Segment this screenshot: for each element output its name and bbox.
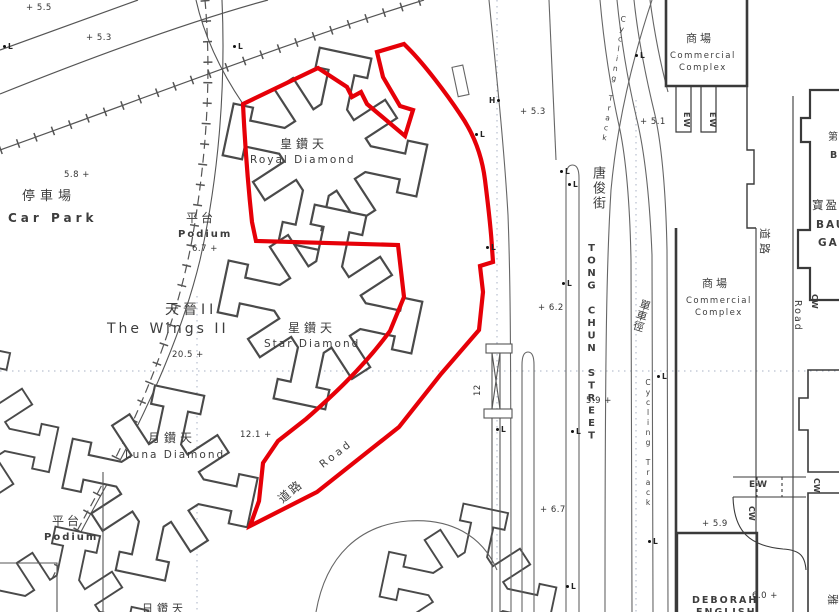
label-cw-1: CW xyxy=(810,294,818,309)
marker-l-5: L xyxy=(560,167,570,176)
label-commercial-top-line1: Commercial xyxy=(670,52,736,61)
spot-height-6-7-podium: 6.7 + xyxy=(192,244,218,254)
label-cycling-track-mid-en: Cycling Track xyxy=(644,378,652,508)
marker-l-4: L xyxy=(486,243,496,252)
marker-l-13: L xyxy=(566,582,576,591)
marker-l-1: L xyxy=(3,42,13,51)
label-road-right-en: Road xyxy=(793,300,803,332)
spot-height-12-1: 12.1 + xyxy=(240,430,272,440)
label-block-partial-zh: 第 xyxy=(828,133,839,143)
label-commercial-mid-line1: Commercial xyxy=(686,297,752,306)
marker-dot xyxy=(568,183,571,186)
label-royal-diamond-zh: 皇鑽天 xyxy=(280,138,328,150)
label-podium-upper-en: Podium xyxy=(178,230,232,240)
survey-plan-map: 停車場 Car Park 天晉II The Wings II 皇鑽天 Royal… xyxy=(0,0,839,612)
label-car-park-zh: 停車場 xyxy=(22,190,76,203)
spot-height-6-0: 6.0 + xyxy=(752,591,778,601)
marker-l-6: L xyxy=(568,180,578,189)
spot-height-5-3-tl: + 5.3 xyxy=(86,33,112,43)
marker-l-12: L xyxy=(648,537,658,546)
label-car-park-en: Car Park xyxy=(8,212,97,224)
marker-dot xyxy=(635,54,638,57)
marker-l-11: L xyxy=(657,372,667,381)
label-podium-lower-en: Podium xyxy=(44,533,98,543)
spot-height-5-3-mid: + 5.3 xyxy=(520,107,546,117)
marker-l-2: L xyxy=(233,42,243,51)
label-deborah-line2: ENGLISH xyxy=(696,608,757,612)
label-road-right-zh: 道路 xyxy=(759,228,770,258)
marker-dot xyxy=(648,540,651,543)
spot-height-12-bridge: 12 xyxy=(473,384,483,396)
label-commercial-top-line2: Complex xyxy=(679,64,727,73)
spot-height-5-9-street: 5.9 + xyxy=(586,396,612,406)
spot-height-5-8: 5.8 + xyxy=(64,170,90,180)
marker-l-3: L xyxy=(475,130,485,139)
label-luna-diamond-zh: 月鑽天 xyxy=(148,432,196,444)
marker-dot xyxy=(486,246,489,249)
marker-dot xyxy=(475,133,478,136)
label-tong-chun-street-zh: 唐俊街 xyxy=(591,166,604,211)
marker-h-1: H xyxy=(489,96,500,105)
label-edge-partial-zh: 雅 xyxy=(827,594,838,609)
marker-dot xyxy=(3,45,6,48)
label-podium-lower-zh: 平台 xyxy=(52,515,82,527)
tower-partial-south xyxy=(367,491,570,612)
label-bauhinia-line1: BAUH xyxy=(816,220,839,231)
marker-dot xyxy=(496,428,499,431)
label-tong-chun-street-en: TONG CHUN STREET xyxy=(586,243,596,443)
label-block-partial-en: Bl xyxy=(830,151,839,161)
label-deborah-line1: DEBORAH xyxy=(692,596,758,606)
label-ew-stub2: EW xyxy=(708,112,716,128)
label-commercial-complex-mid-zh: 商場 xyxy=(702,278,730,289)
spot-height-5-1: + 5.1 xyxy=(640,117,666,127)
label-star-diamond-en: Star Diamond xyxy=(264,339,360,350)
marker-dot xyxy=(657,375,660,378)
label-luna-diamond-en: Luna Diamond xyxy=(125,450,225,461)
label-sun-diamond-partial-zh: 日鑽天 xyxy=(142,603,187,612)
label-star-diamond-zh: 星鑽天 xyxy=(288,322,336,334)
tower-star-diamond xyxy=(203,190,438,425)
marker-dot xyxy=(571,430,574,433)
label-cw-2: CW xyxy=(812,478,820,493)
label-ew-band: EW xyxy=(749,481,769,490)
label-wings2-en: The Wings II xyxy=(107,322,229,336)
marker-l-10: L xyxy=(635,51,645,60)
label-cw-3: CW xyxy=(747,506,755,521)
marker-l-7: L xyxy=(562,279,572,288)
label-wings2-zh: 天晉II xyxy=(165,303,217,317)
label-bauhinia-zh: 寶盈 xyxy=(812,200,839,212)
marker-l-9: L xyxy=(571,427,581,436)
label-podium-upper-zh: 平台 xyxy=(186,212,216,224)
spot-height-6-7-street: + 6.7 xyxy=(540,505,566,515)
label-ew-stub1: EW xyxy=(682,112,690,128)
label-bauhinia-line2: GAR xyxy=(818,238,839,249)
spot-height-20-5: 20.5 + xyxy=(172,350,204,360)
spot-height-5-9-se: + 5.9 xyxy=(702,519,728,529)
marker-dot xyxy=(562,282,565,285)
spot-height-5-5: + 5.5 xyxy=(26,3,52,13)
marker-dot xyxy=(233,45,236,48)
label-royal-diamond-en: Royal Diamond xyxy=(250,155,356,166)
marker-l-8: L xyxy=(496,425,506,434)
marker-dot xyxy=(566,585,569,588)
marker-dot xyxy=(497,99,500,102)
marker-dot xyxy=(560,170,563,173)
tower-partial-west xyxy=(0,331,71,534)
label-commercial-mid-line2: Complex xyxy=(695,309,743,318)
spot-height-6-2: + 6.2 xyxy=(538,303,564,313)
label-commercial-complex-top-zh: 商場 xyxy=(686,33,714,44)
